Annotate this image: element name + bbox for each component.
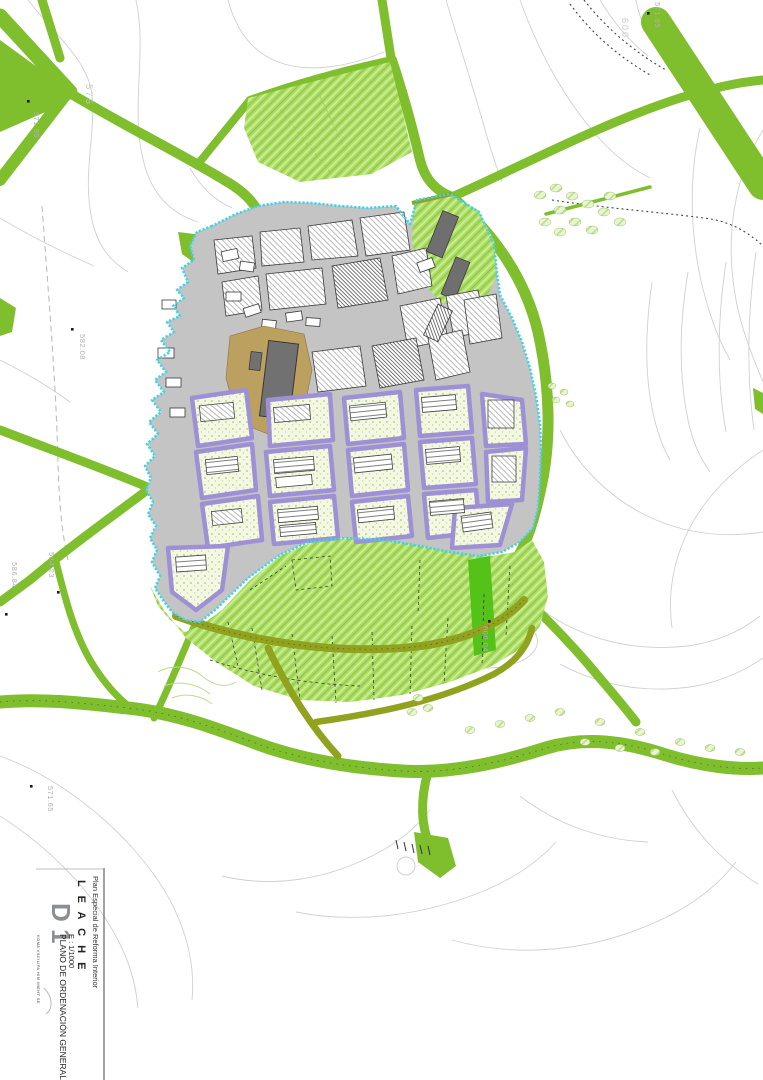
sheet-title: PLANO DE ORDENACIÓN GENERAL.-: [58, 934, 68, 1080]
elevation-point-label: 600.04: [481, 626, 490, 652]
elevation-point-label: 571.99: [32, 112, 41, 138]
scale-label: E : 1/1000: [67, 934, 76, 968]
fine-print-illegible: KOMA VSCILIPA HIM IMEHT SE: [36, 935, 41, 1004]
elevation-point-label: 582.08: [78, 334, 87, 360]
elevation-point-label: 571.85: [653, 2, 662, 28]
contour-label-575: 575: [83, 84, 94, 106]
elevation-point-label: 586.84: [10, 562, 19, 588]
plan-sheet: 575 600 571.85 571.99 582.08 584.23 586.…: [0, 0, 763, 1080]
project-title: Plan Especial de Reforma Interior: [91, 876, 100, 989]
contour-label-600: 600: [620, 18, 630, 39]
elevation-point-label: 584.23: [47, 552, 56, 578]
elevation-point-label: 571.65: [46, 786, 55, 812]
map-canvas: 575 600 571.85 571.99 582.08 584.23 586.…: [0, 0, 763, 1080]
